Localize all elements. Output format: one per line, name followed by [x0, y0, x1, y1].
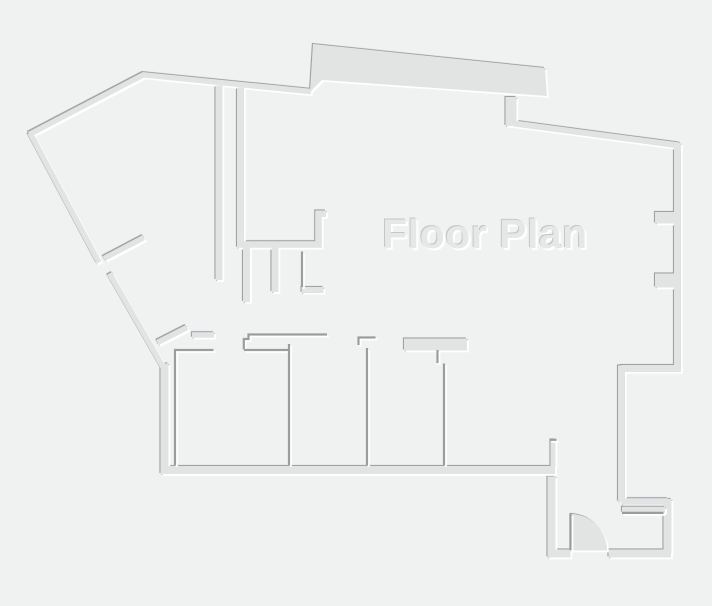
corridor-wall-step: [244, 335, 327, 350]
wall-top: [143, 75, 311, 92]
wall-left-diagonal-upper: [30, 133, 99, 263]
wall-left-diagonal-lower: [110, 274, 164, 368]
entry-partition-upper: [104, 238, 144, 259]
door-swing: [571, 514, 608, 551]
wall-top-left-diagonal: [29, 74, 144, 134]
floor-plan-label: Floor Plan: [340, 214, 630, 255]
window-stub-upper: [655, 212, 675, 224]
corridor-jamb: [359, 338, 376, 346]
protrusion-slab: [310, 44, 547, 96]
wall-doorroom-left: [552, 477, 571, 554]
wall-kitchen: [237, 214, 326, 245]
entry-partition-lower: [158, 328, 188, 343]
window-stub-lower: [655, 274, 675, 288]
wall-top-right: [514, 124, 679, 146]
floor-plan-canvas: Floor Plan: [0, 0, 712, 606]
floor-plan-drawing: [0, 0, 712, 606]
room1-left-top: [175, 350, 214, 465]
